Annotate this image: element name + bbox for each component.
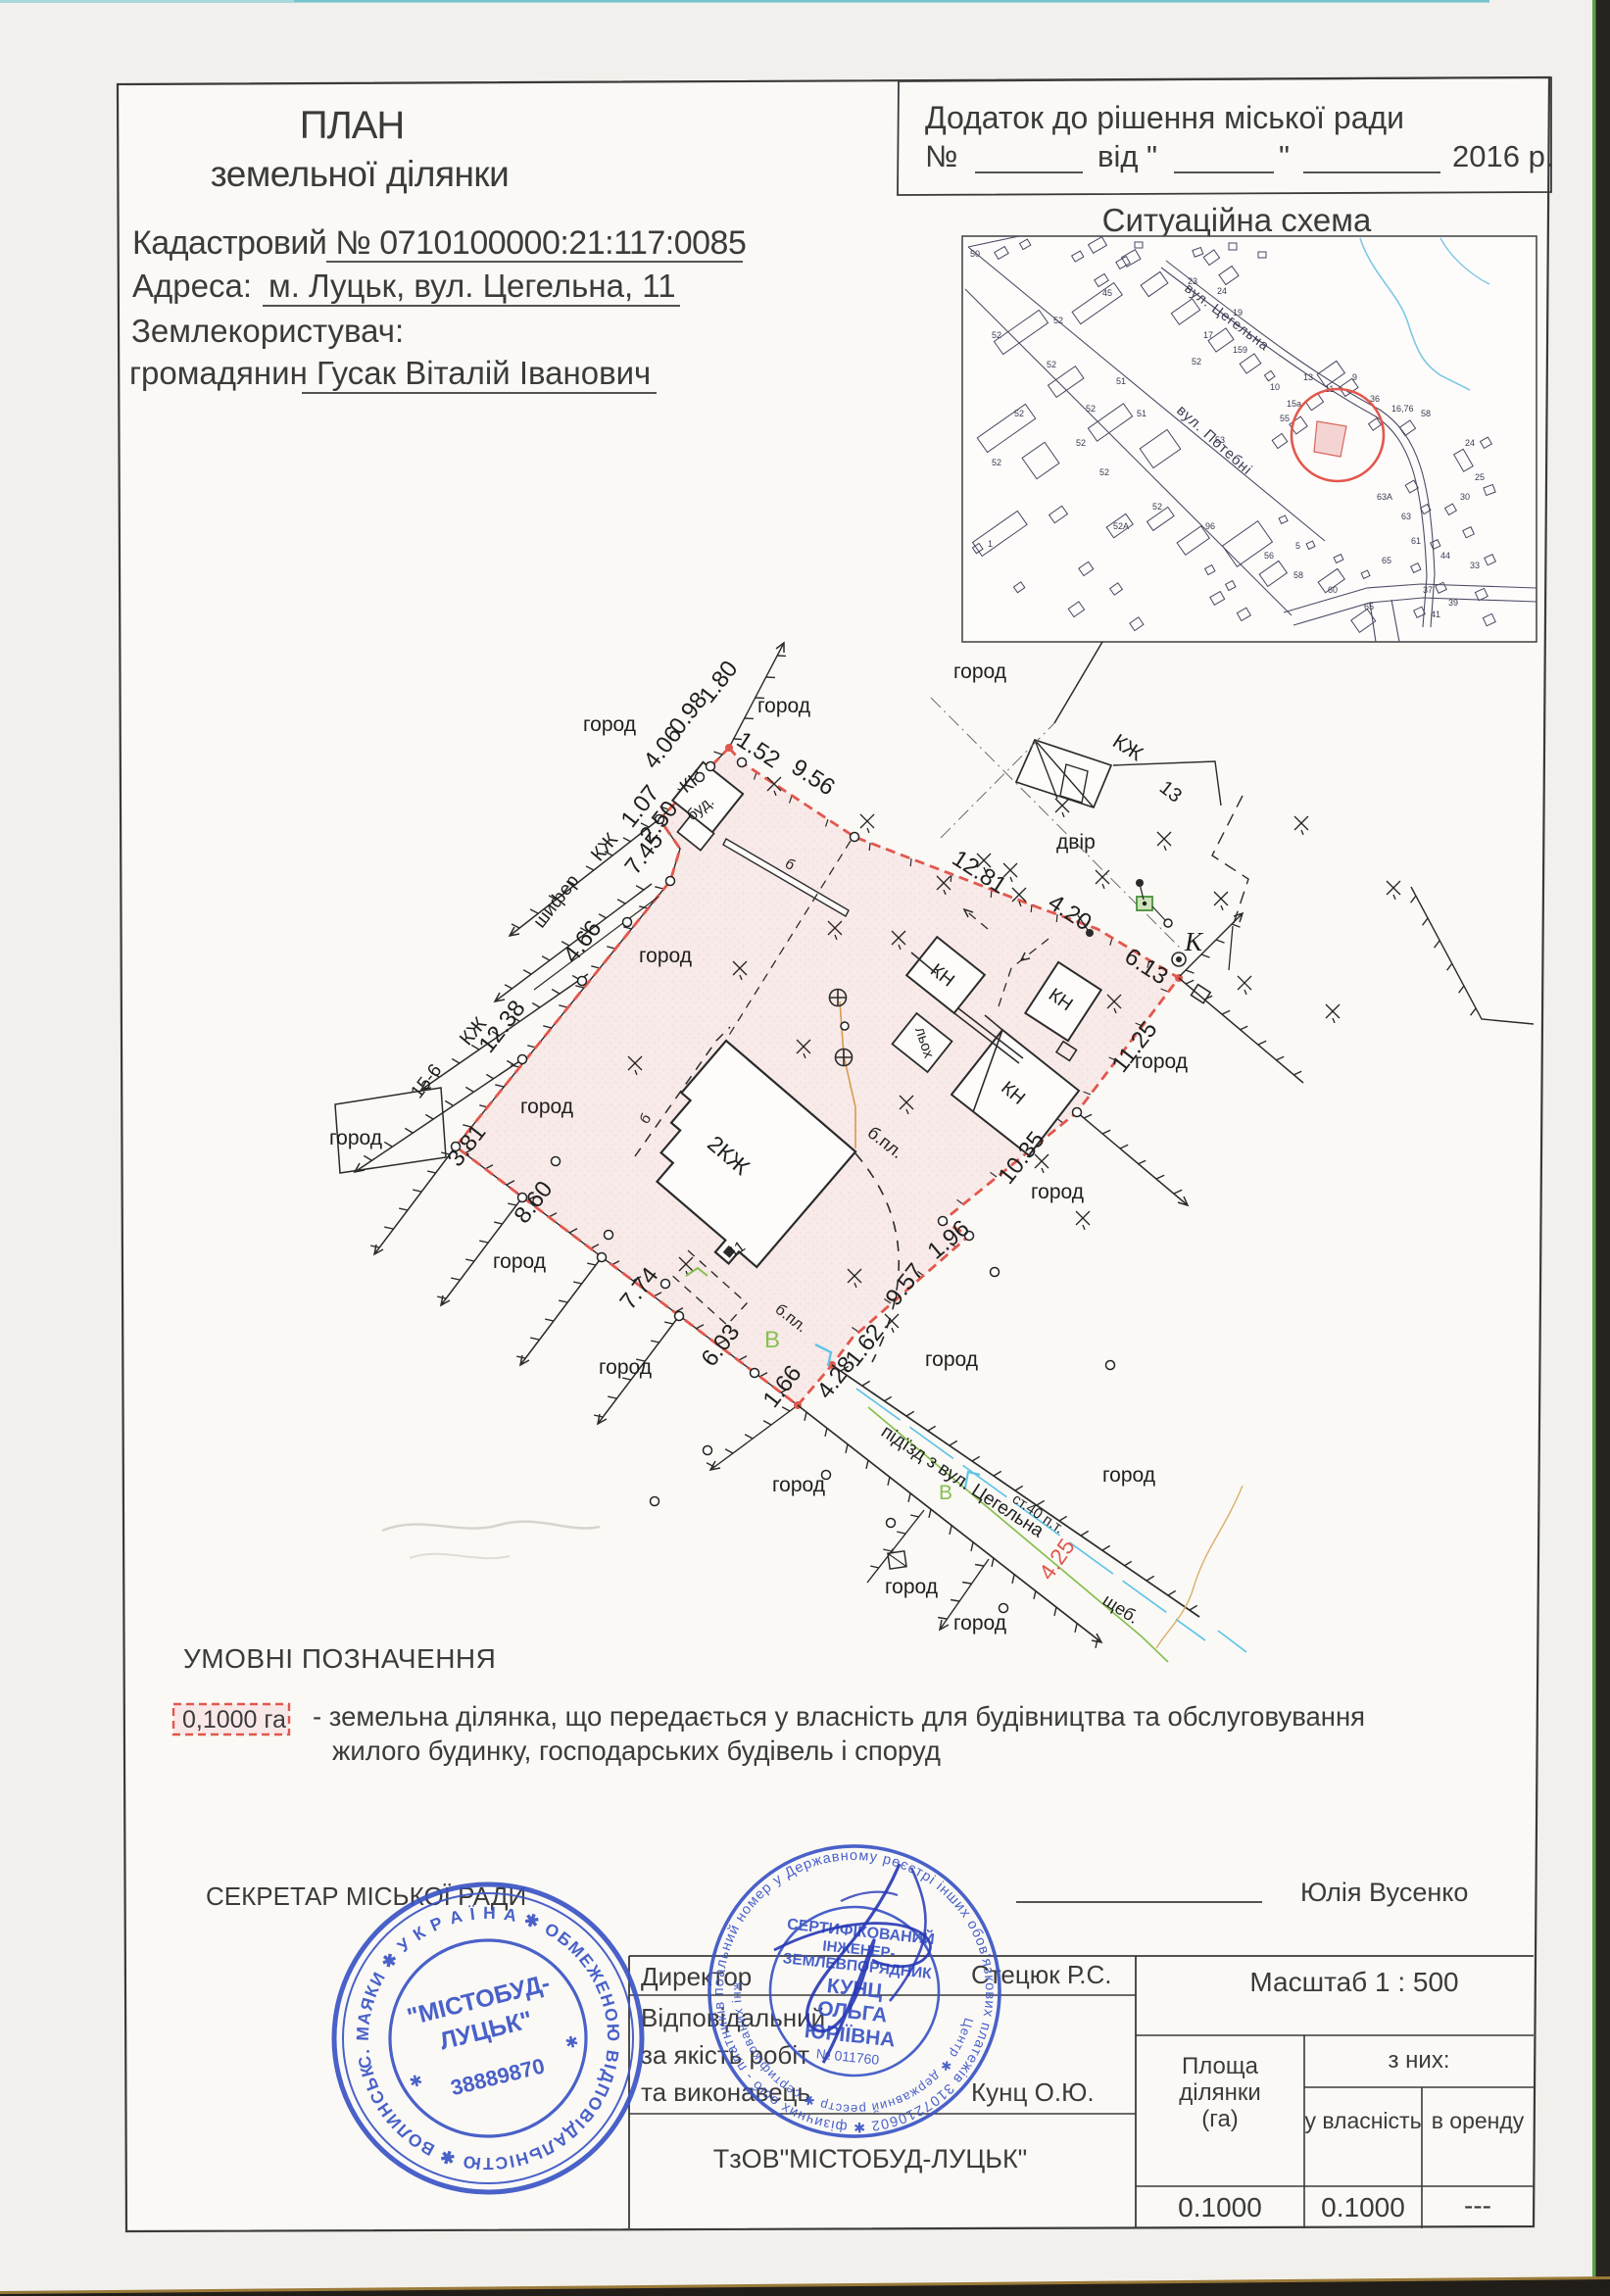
svg-text:№: № [925,139,957,173]
svg-text:15а: 15а [1287,399,1301,409]
svg-text:33: 33 [1470,561,1480,570]
svg-text:В: В [764,1327,780,1353]
svg-text:58: 58 [1293,570,1303,580]
svg-text:52А: 52А [1113,521,1129,531]
svg-text:Юлія Вусенко: Юлія Вусенко [1300,1878,1468,1907]
svg-text:Масштаб 1 : 500: Масштаб 1 : 500 [1249,1967,1458,1997]
svg-text:в оренду: в оренду [1432,2108,1525,2133]
svg-text:город: город [493,1250,546,1273]
svg-text:город: город [885,1576,938,1598]
svg-text:Адреса:: Адреса: [132,268,252,304]
svg-text:город: город [953,1612,1006,1635]
svg-text:город: город [1031,1181,1084,1203]
svg-text:25: 25 [1475,472,1485,482]
svg-text:Площа: Площа [1182,2053,1259,2079]
svg-text:": " [1279,139,1290,173]
svg-text:земельної ділянки: земельної ділянки [211,154,510,194]
svg-text:---: --- [1464,2190,1491,2221]
svg-text:город: город [1102,1464,1155,1487]
svg-text:город: город [520,1096,573,1118]
svg-text:52: 52 [1053,316,1063,325]
svg-text:город: город [925,1348,978,1371]
svg-text:52: 52 [992,330,1001,340]
svg-text:41: 41 [1431,610,1440,619]
svg-text:город: город [1135,1050,1188,1073]
svg-text:51: 51 [1116,376,1126,386]
svg-text:2016 р.: 2016 р. [1452,139,1553,173]
svg-text:город: город [583,713,636,736]
svg-text:96: 96 [1205,521,1215,531]
svg-text:Землекористувач:: Землекористувач: [131,313,404,349]
svg-text:від ": від " [1098,139,1157,173]
svg-text:39: 39 [1448,598,1458,608]
svg-text:0.1000: 0.1000 [1321,2192,1405,2223]
svg-text:159: 159 [1233,345,1247,355]
svg-text:город: город [639,945,692,967]
svg-text:61: 61 [1411,536,1421,546]
svg-text:громадянин Гусак Віталій Івано: громадянин Гусак Віталій Іванович [129,355,651,391]
svg-text:30: 30 [1460,492,1470,502]
svg-text:0,1000 га: 0,1000 га [182,1706,286,1734]
svg-text:- земельна ділянка, що передає: - земельна ділянка, що передається у вла… [313,1701,1365,1732]
svg-text:52: 52 [992,458,1001,467]
svg-text:ТзОВ"МІСТОБУД-ЛУЦЬК": ТзОВ"МІСТОБУД-ЛУЦЬК" [713,2144,1028,2174]
svg-text:52: 52 [1086,404,1096,414]
svg-text:52: 52 [1047,360,1056,369]
svg-text:24: 24 [1465,438,1475,448]
svg-text:УМОВНІ ПОЗНАЧЕННЯ: УМОВНІ ПОЗНАЧЕННЯ [183,1643,496,1674]
svg-text:(га): (га) [1201,2106,1239,2132]
svg-text:63: 63 [1401,512,1411,521]
svg-text:37: 37 [1423,585,1433,595]
svg-text:у власність: у власність [1304,2108,1421,2133]
svg-text:ділянки: ділянки [1179,2079,1261,2106]
svg-text:56: 56 [1264,551,1274,561]
svg-text:К: К [1184,927,1204,956]
svg-text:5: 5 [1295,541,1300,551]
svg-text:52: 52 [1152,502,1162,512]
svg-text:Ситуаційна схема: Ситуаційна схема [1102,202,1372,238]
svg-text:з них:: з них: [1389,2047,1450,2074]
svg-text:60: 60 [1328,585,1338,595]
svg-text:0.1000: 0.1000 [1178,2192,1262,2223]
svg-text:город: город [953,660,1006,683]
svg-text:город: город [599,1356,652,1379]
svg-text:65: 65 [1382,556,1391,565]
svg-text:м. Луцьк, вул. Цегельна, 11: м. Луцьк, вул. Цегельна, 11 [268,268,676,304]
svg-text:жилого будинку, господарських: жилого будинку, господарських будівель і… [332,1735,941,1766]
svg-text:50: 50 [970,249,980,259]
svg-text:город: город [757,695,810,717]
svg-text:65: 65 [1364,602,1374,611]
svg-text:51: 51 [1137,409,1147,418]
svg-text:Додаток до рішення міської рад: Додаток до рішення міської ради [925,100,1404,135]
svg-text:45: 45 [1102,288,1112,298]
svg-text:52: 52 [1076,438,1086,448]
svg-text:10: 10 [1270,382,1280,392]
svg-text:63А: 63А [1377,492,1392,502]
svg-text:двір: двір [1056,831,1096,854]
svg-text:1: 1 [988,539,993,549]
svg-text:9: 9 [1352,372,1357,382]
svg-text:44: 44 [1440,551,1450,561]
svg-text:ПЛАН: ПЛАН [300,104,405,147]
svg-text:55: 55 [1280,414,1290,423]
svg-text:58: 58 [1421,409,1431,418]
svg-text:Кунц О.Ю.: Кунц О.Ю. [971,2077,1095,2107]
svg-text:52: 52 [1099,467,1109,477]
svg-text:16,76: 16,76 [1391,404,1414,414]
svg-text:24: 24 [1217,286,1227,296]
svg-text:17: 17 [1203,330,1213,340]
svg-text:52: 52 [1192,357,1201,366]
svg-text:52: 52 [1014,409,1024,418]
svg-text:город: город [329,1127,382,1149]
svg-text:Кадастровий № 0710100000:21:11: Кадастровий № 0710100000:21:117:0085 [132,224,746,262]
svg-text:город: город [772,1474,825,1496]
svg-text:13: 13 [1303,372,1313,382]
